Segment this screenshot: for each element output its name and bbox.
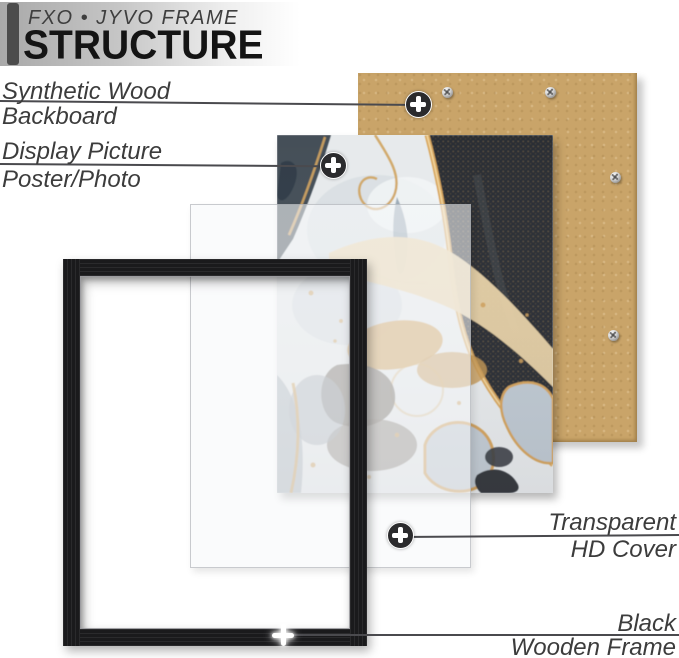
screw-icon: [608, 330, 619, 341]
callout-frame-line1: Black: [617, 612, 676, 636]
product-structure-diagram: FXO • JYVO FRAME STRUCTURE: [0, 0, 679, 658]
page-title: STRUCTURE: [23, 23, 264, 69]
plus-icon: [398, 527, 403, 543]
plus-icon: [416, 96, 421, 112]
callout-frame-line2: Wooden Frame: [511, 636, 676, 658]
frame-top-bar: [63, 259, 367, 276]
callout-cover-line2: HD Cover: [571, 538, 676, 562]
frame-bottom-bar: [63, 629, 367, 646]
plus-icon: [281, 624, 286, 646]
frame-inner-lip: [80, 276, 350, 629]
wooden-frame-layer: [63, 259, 367, 646]
screw-icon: [610, 172, 621, 183]
title-accent-bar: [7, 3, 19, 65]
frame-right-bar: [350, 259, 367, 646]
callout-backboard-line1: Synthetic Wood: [2, 80, 170, 104]
plus-icon: [331, 157, 336, 173]
crosshair-marker-cover-icon: [387, 522, 414, 549]
crosshair-marker-picture-icon: [320, 152, 347, 179]
crosshair-marker-backboard-icon: [405, 91, 432, 118]
plus-marker-frame-icon: [272, 624, 294, 646]
title-block: FXO • JYVO FRAME STRUCTURE: [0, 2, 300, 66]
callout-picture-line2: Poster/Photo: [2, 168, 141, 192]
callout-cover-line1: Transparent: [548, 511, 676, 535]
screw-icon: [545, 87, 556, 98]
screw-icon: [442, 87, 453, 98]
callout-picture-line1: Display Picture: [2, 140, 162, 164]
callout-backboard-line2: Backboard: [2, 105, 117, 129]
frame-left-bar: [63, 259, 80, 646]
